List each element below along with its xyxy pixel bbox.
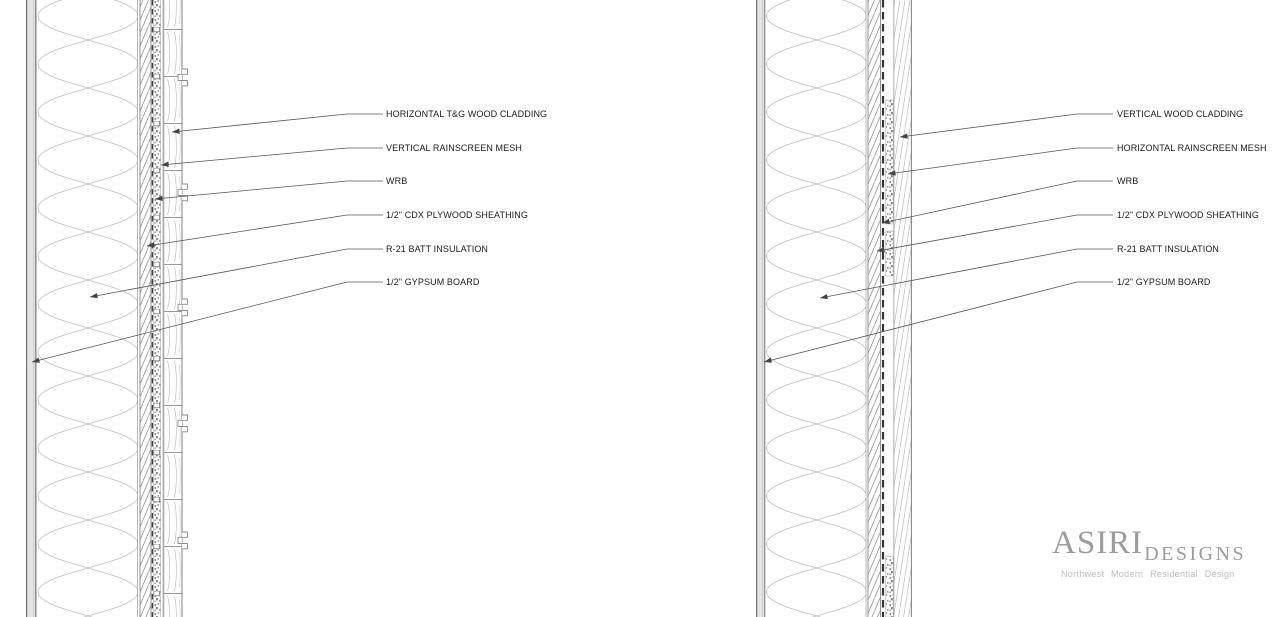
- logo-tagline-text: Northwest Modern Residential Design: [1061, 569, 1268, 579]
- label-wrb-right: WRB: [1117, 176, 1138, 186]
- left-gypsum-board-layer: [26, 0, 36, 617]
- label-vertical-wood-cladding: VERTICAL WOOD CLADDING: [1117, 109, 1243, 119]
- left-wood-cladding-layer: [152, 0, 188, 617]
- company-logo: ASIRI DESIGNS Northwest Modern Residenti…: [1052, 526, 1268, 579]
- right-gypsum-board-layer: [756, 0, 765, 617]
- logo-suffix-text: DESIGNS: [1144, 544, 1246, 564]
- left-wall-section: [26, 0, 383, 617]
- leader-line: [888, 148, 1113, 174]
- label-cdx-plywood-left: 1/2" CDX PLYWOOD SHEATHING: [386, 210, 528, 220]
- leader-line: [877, 215, 1113, 251]
- left-plywood-sheathing-layer: [140, 0, 151, 617]
- leader-line: [882, 181, 1113, 223]
- label-cdx-plywood-right: 1/2" CDX PLYWOOD SHEATHING: [1117, 210, 1259, 220]
- label-gypsum-board-left: 1/2" GYPSUM BOARD: [386, 277, 479, 287]
- label-vertical-rainscreen-mesh: VERTICAL RAINSCREEN MESH: [386, 143, 522, 153]
- label-batt-insulation-left: R-21 BATT INSULATION: [386, 244, 488, 254]
- label-wrb-left: WRB: [386, 176, 407, 186]
- right-rainscreen-mesh-layer: [886, 100, 894, 617]
- drawing-canvas: HORIZONTAL T&G WOOD CLADDING VERTICAL RA…: [0, 0, 1280, 617]
- leader-line: [172, 114, 383, 132]
- label-gypsum-board-right: 1/2" GYPSUM BOARD: [1117, 277, 1210, 287]
- right-batt-insulation-layer: [765, 0, 867, 617]
- left-batt-insulation-layer: [36, 0, 138, 617]
- right-wood-cladding-layer: [894, 0, 912, 617]
- right-plywood-sheathing-layer: [868, 0, 881, 617]
- leader-line: [900, 114, 1113, 137]
- label-batt-insulation-right: R-21 BATT INSULATION: [1117, 244, 1219, 254]
- leader-line: [155, 181, 383, 199]
- label-horizontal-tg-wood-cladding: HORIZONTAL T&G WOOD CLADDING: [386, 109, 547, 119]
- label-horizontal-rainscreen-mesh: HORIZONTAL RAINSCREEN MESH: [1117, 143, 1267, 153]
- board-clip-tabs: [152, 0, 162, 617]
- logo-brand-text: ASIRI: [1052, 526, 1143, 560]
- leader-line: [161, 148, 383, 165]
